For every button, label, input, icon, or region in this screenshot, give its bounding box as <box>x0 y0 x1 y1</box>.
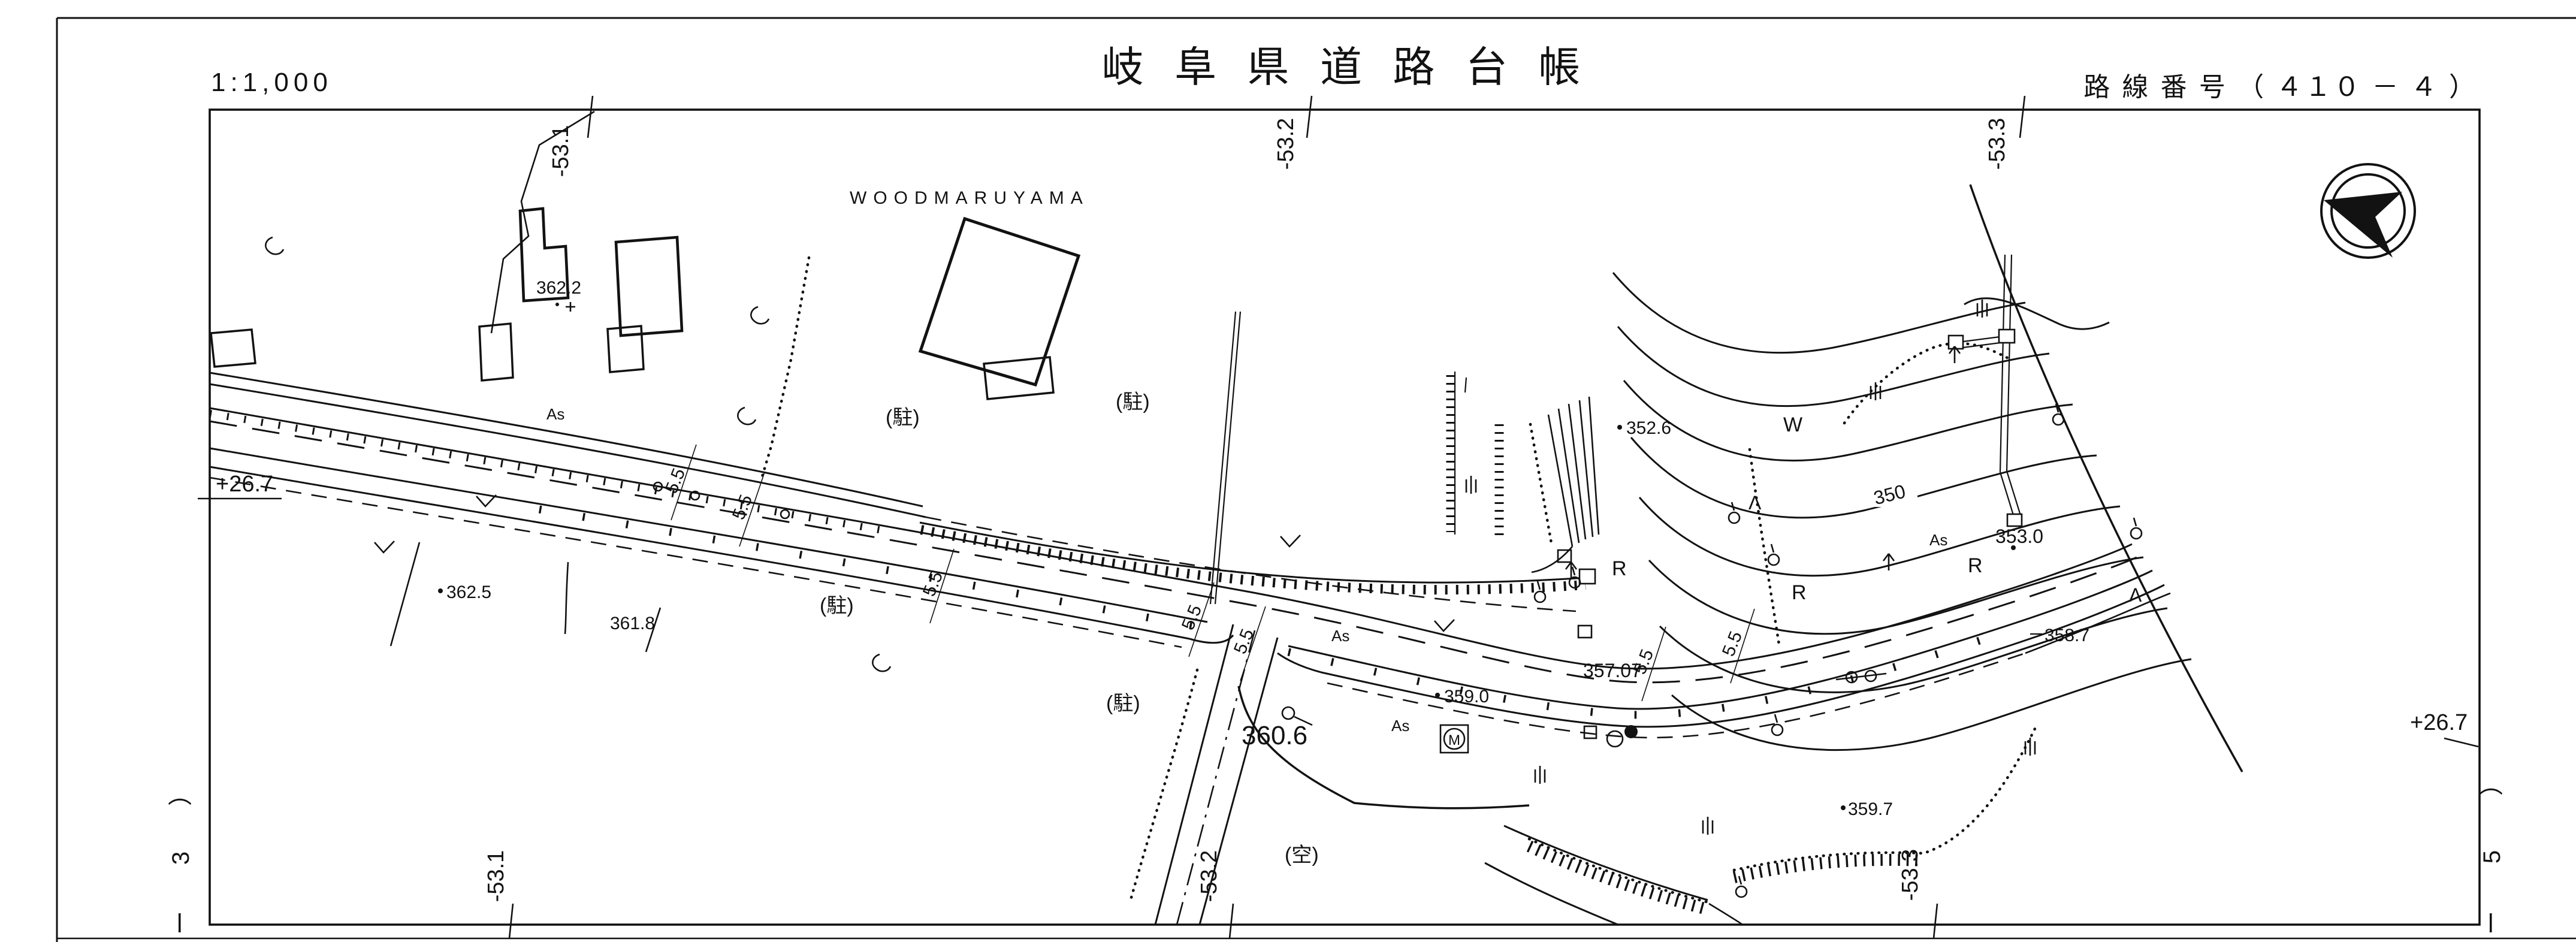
spot-359-7: 359.7 <box>1848 799 1893 819</box>
pavement-label-4: As <box>1929 531 1947 549</box>
spot-362-2: 362.2 <box>536 278 581 298</box>
map-frame <box>210 110 2480 925</box>
margin-left-paren: ） <box>168 782 194 806</box>
pavement-label-1: As <box>546 405 564 423</box>
buildings <box>211 209 1079 399</box>
driveway-stubs <box>391 542 660 652</box>
sheet-border <box>57 18 2576 942</box>
svg-text:5.5: 5.5 <box>729 492 756 523</box>
grid-label-bottom-1: -53.1 <box>484 850 509 902</box>
margin-right-dash: ー <box>2479 911 2505 935</box>
svg-text:5.5: 5.5 <box>1178 602 1206 633</box>
vegetation-curls <box>265 237 890 671</box>
manhole-icon: M <box>1440 725 1468 753</box>
side-road <box>1130 312 1278 925</box>
spot-360-6: 360.6 <box>1242 721 1307 750</box>
road-ledger-sheet: 1:1,000 岐 阜 県 道 路 台 帳 路 線 番 号 （ ４１０ － ４ … <box>0 0 2576 942</box>
w-symbol: W <box>1783 413 1802 436</box>
grid-label-top-2: -53.2 <box>1273 118 1298 170</box>
parking-label-3: (駐) <box>820 594 854 617</box>
point-symbols: M <box>265 237 2142 897</box>
margin-right-number: 5 <box>2479 850 2505 864</box>
scale-label: 1:1,000 <box>211 68 333 97</box>
pole-icons <box>654 404 2142 897</box>
hill-area: 350 <box>1451 185 2242 772</box>
spot-362-5: 362.5 <box>446 582 491 602</box>
benchmark-dot <box>1624 725 1638 738</box>
page-title: 岐 阜 県 道 路 台 帳 <box>1102 44 1590 90</box>
parking-label-1: (駐) <box>886 406 920 429</box>
margin-right-paren: ） <box>2479 772 2505 796</box>
lambda-symbol-2: Λ <box>2129 584 2142 606</box>
map-labels: WOODMARUYAMA (駐) (駐) (駐) (駐) (空) As As A… <box>546 188 2142 866</box>
grid-label-right-level: +26.7 <box>2410 710 2468 735</box>
svg-text:5.5: 5.5 <box>1230 626 1258 657</box>
place-name-label: WOODMARUYAMA <box>850 188 1089 208</box>
cross-mark <box>566 302 575 312</box>
r-label-3: R <box>1968 554 1983 577</box>
svg-text:M: M <box>1448 732 1460 748</box>
spot-357-07: 357.07 <box>1583 660 1642 681</box>
spot-359-0: 359.0 <box>1444 687 1489 707</box>
pavement-label-2: As <box>1331 627 1349 645</box>
margin-left-dash: ー <box>168 911 194 935</box>
spot-361-8: 361.8 <box>610 614 655 633</box>
grid-label-top-3: -53.3 <box>1985 118 2010 170</box>
vacant-label: (空) <box>1285 844 1319 866</box>
r-label-1: R <box>1612 557 1627 580</box>
spot-352-6: 352.6 <box>1626 418 1671 438</box>
spot-353-0: 353.0 <box>1995 526 2043 547</box>
lambda-symbol-1: Λ <box>1748 492 1762 514</box>
parking-label-2: (駐) <box>1116 391 1150 413</box>
grid-label-top-1: -53.1 <box>548 125 573 177</box>
svg-text:5.5: 5.5 <box>1719 629 1746 659</box>
r-label-2: R <box>1792 581 1807 604</box>
grid-labels: -53.1 -53.2 -53.3 -53.1 -53.2 -53.3 +26.… <box>216 118 2468 902</box>
north-arrow-icon <box>2321 164 2415 258</box>
margin-left-number: 3 <box>168 852 194 865</box>
grid-ticks <box>198 96 2478 938</box>
margin-marks: ） 3 ー ） 5 ー <box>168 772 2505 935</box>
main-road <box>210 373 2170 738</box>
spot-358-7: 358.7 <box>2045 626 2089 645</box>
pavement-label-3: As <box>1391 717 1409 735</box>
map-canvas: 1:1,000 岐 阜 県 道 路 台 帳 路 線 番 号 （ ４１０ － ４ … <box>0 0 2576 942</box>
grid-label-bottom-3: -53.3 <box>1898 849 1923 901</box>
route-number: 路 線 番 号 （ ４１０ － ４ ） <box>2083 73 2478 102</box>
parking-label-4: (駐) <box>1106 692 1140 715</box>
